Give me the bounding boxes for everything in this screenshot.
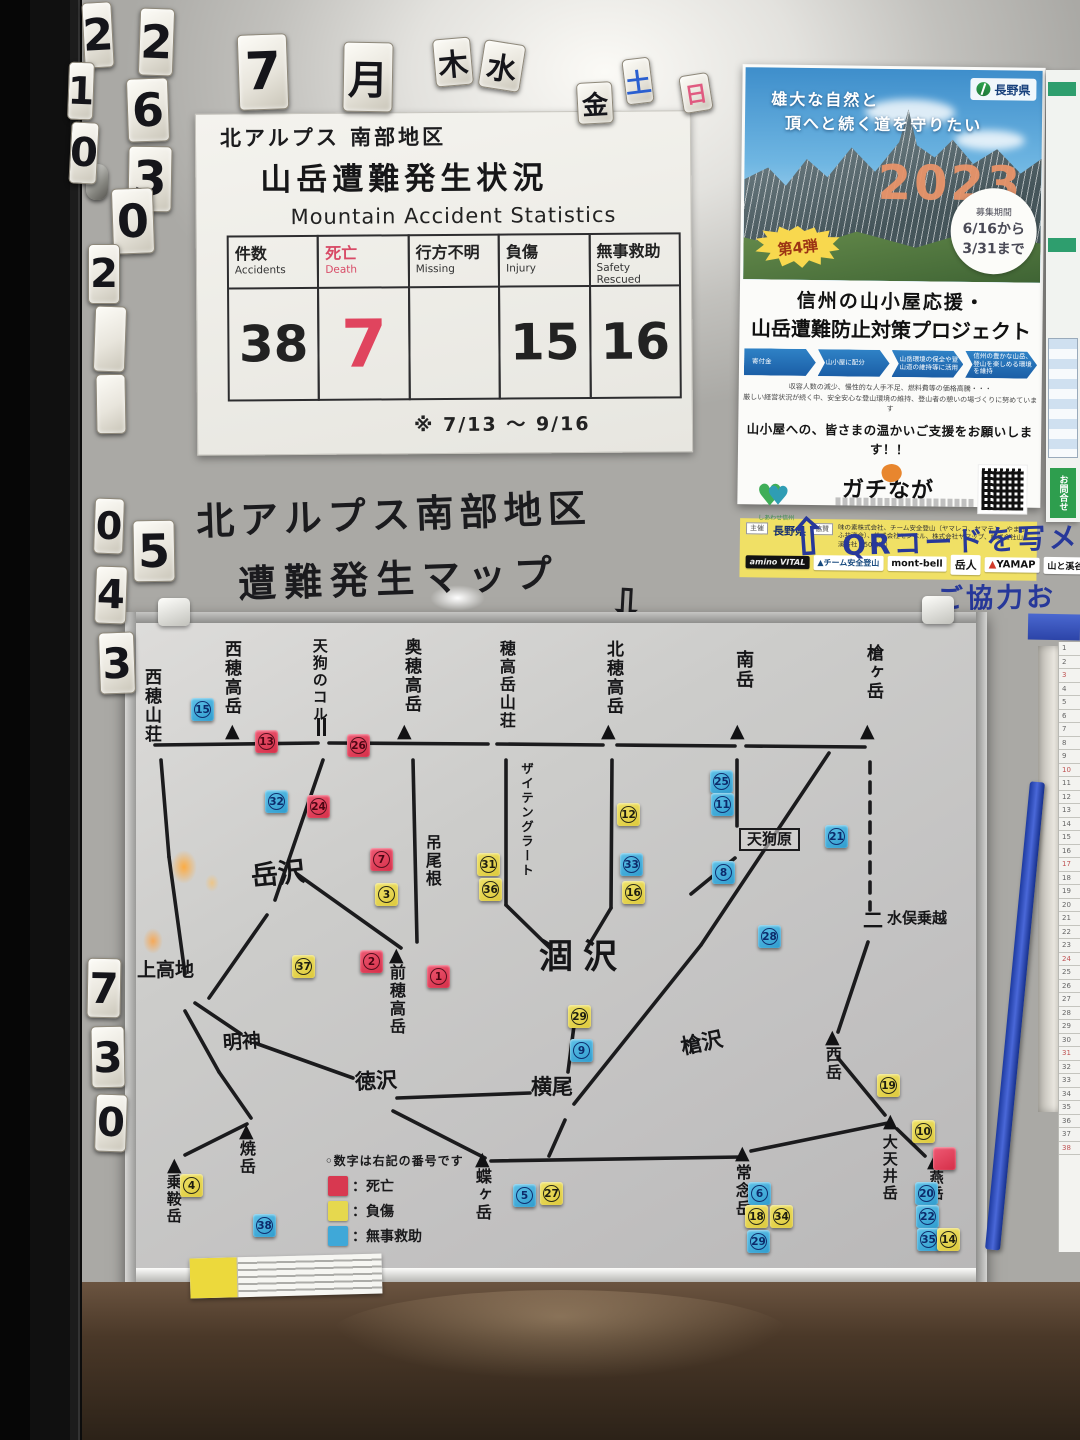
flyer-green-bar (1048, 82, 1076, 96)
map-location: 西穂山荘 (141, 668, 160, 744)
magnet-number: 11 (714, 796, 731, 813)
accident-magnet: 9 (570, 1039, 593, 1062)
calendar-tile: 7 (86, 958, 121, 1019)
accident-magnet: 14 (937, 1228, 960, 1251)
map-location: 穂高岳山荘 (497, 640, 515, 730)
map-title-line2: 遭難発生マップ (237, 542, 561, 608)
peak-triangle-icon: ▲ (883, 1112, 898, 1131)
accident-magnet: 20 (915, 1182, 938, 1205)
magnet-number: 12 (620, 806, 637, 823)
stats-column-header: 無事救助Safety Rescued (590, 234, 679, 287)
poster-title: 信州の山小屋応援・ 山岳遭難防止対策プロジェクト (742, 285, 1040, 345)
legend-label: ：負傷 (352, 1201, 394, 1221)
map-location: 天狗原 (739, 828, 800, 851)
accident-magnet: 1 (427, 965, 450, 988)
calendar-tile: 0 (93, 497, 125, 554)
board-clip (158, 598, 190, 626)
stats-column-accidents: 件数Accidents38 (227, 235, 321, 402)
list-row: 4 (1059, 683, 1080, 697)
accident-magnet: 38 (253, 1214, 276, 1237)
accident-magnet: 4 (180, 1174, 203, 1197)
map-location: 奥穂高岳 (401, 638, 420, 714)
list-row: 11 (1059, 777, 1080, 791)
magnet-number: 4 (183, 1177, 200, 1194)
accident-magnet: 34 (770, 1205, 793, 1228)
legend-color-chip (328, 1201, 348, 1221)
organizer-label: 主催 (746, 522, 768, 534)
gachinaga-logo: ガチなが (842, 471, 934, 504)
poster-brand-row: ♥ ♥ しあわせ信州 ガチなが (754, 463, 1024, 512)
nagano-pref-logo: 長野県 (970, 78, 1036, 101)
peak-triangle-icon: ▲ (167, 1156, 182, 1175)
stats-column-missing: 行方不明Missing (407, 234, 501, 401)
stats-column-header: 負傷Injury (500, 235, 589, 288)
stats-english-title: Mountain Accident Statistics (290, 202, 674, 229)
stats-period-note: ※ 7/13 ～ 9/16 (414, 408, 676, 437)
magnet-number: 21 (828, 828, 845, 845)
stats-column-death: 死亡Death7 (317, 234, 411, 401)
peak-triangle-icon: ▲ (825, 1028, 840, 1047)
list-row: 19 (1059, 885, 1080, 899)
list-row: 6 (1059, 710, 1080, 724)
list-row: 27 (1059, 993, 1080, 1007)
peak-triangle-icon: ▲ (601, 722, 616, 741)
peak-triangle-icon: ▲ (735, 1144, 750, 1163)
map-location: 徳沢 (354, 1069, 397, 1095)
magnet-number: 1 (430, 968, 447, 985)
sponsor-logo-yamap: ▲YAMAP (985, 557, 1040, 573)
magnet-number: 6 (751, 1185, 768, 1202)
poster-step: 山小屋に配分 (818, 349, 890, 377)
peak-triangle-icon: ▲ (475, 1150, 490, 1169)
accident-magnet: 11 (711, 793, 734, 816)
stats-header-jp: 件数 (235, 240, 314, 265)
calendar-tile: 7 (237, 33, 290, 111)
partial-flyer: お問合せ (1046, 70, 1080, 522)
accident-magnet: 36 (479, 878, 502, 901)
numbered-list-sheet: 1234567891011121314151617181920212223242… (1058, 642, 1080, 1252)
up-arrow-icon: ⇧ (784, 507, 832, 570)
poster-tagline: 雄大な自然と 頂へと続く道を守りたい (771, 86, 983, 137)
map-location: ザイテングラート (519, 762, 533, 878)
peak-triangle-icon: ▲ (389, 946, 404, 965)
accident-magnet: 29 (747, 1230, 770, 1253)
poster-step: 寄付金 (744, 348, 816, 376)
accident-magnet: 28 (758, 925, 781, 948)
stats-main-title: 山岳遭難発生状況 (260, 151, 674, 199)
calendar-tile: 1 (67, 62, 95, 121)
magnet-number: 10 (915, 1123, 932, 1140)
peak-triangle-icon: ▲ (225, 722, 240, 741)
map-location: 大天井岳 (881, 1134, 898, 1202)
magnet-number: 22 (919, 1208, 936, 1225)
qr-code (981, 468, 1024, 511)
magnet-number: 8 (715, 864, 732, 881)
list-row: 31 (1059, 1047, 1080, 1061)
magnet-number: 19 (880, 1077, 897, 1094)
magnet-number: 16 (625, 884, 642, 901)
board-clip (922, 596, 954, 624)
magnet-number: 38 (256, 1217, 273, 1234)
legend-row: ：死亡 (328, 1176, 394, 1196)
calendar-tile: 金 (576, 81, 614, 125)
list-row: 25 (1059, 966, 1080, 980)
poster-step-flow: 寄付金山小屋に配分山岳環境の保全や登山道の維持等に活用信州の豊かな山岳、登山を楽… (744, 348, 1037, 379)
calendar-tile: 3 (98, 631, 136, 694)
accident-magnet: 37 (292, 955, 315, 978)
accident-magnet: 27 (540, 1182, 563, 1205)
peak-triangle-icon: ▲ (397, 722, 412, 741)
calendar-tile: 3 (90, 1026, 125, 1089)
map-title-line1: 北アルプス南部地区 (195, 477, 592, 546)
magnet-number: 31 (480, 856, 497, 873)
map-location: 明神 (222, 1031, 261, 1055)
accident-map-board: 西穂山荘西穂高岳▲天狗のコル奥穂高岳▲吊尾根穂高岳山荘ザイテングラート北穂高岳▲… (125, 612, 987, 1292)
accident-magnet: 10 (912, 1120, 935, 1143)
list-row: 7 (1059, 723, 1080, 737)
magnet-number: 37 (295, 958, 312, 975)
heart-icon: ♥ (766, 481, 790, 511)
list-row: 15 (1059, 831, 1080, 845)
magnet-number: 14 (940, 1231, 957, 1248)
magnet-number: 7 (373, 851, 390, 868)
list-row: 23 (1059, 939, 1080, 953)
magnet-number: 3 (378, 886, 395, 903)
stats-column-header: 死亡Death (319, 236, 408, 289)
list-row: 18 (1059, 872, 1080, 886)
stats-header-en: Accidents (235, 264, 313, 277)
legend-label: ：死亡 (352, 1176, 394, 1196)
magnet-number: 28 (761, 928, 778, 945)
map-location: 西岳 (823, 1046, 841, 1082)
map-location: 焼岳 (237, 1140, 255, 1176)
stats-header-en: Safety Rescued (596, 261, 675, 286)
calendar-tile: 日 (678, 72, 714, 114)
calendar-tile: 水 (478, 39, 527, 93)
list-row: 1 (1059, 642, 1080, 656)
display-case-photo: 北アルプス 南部地区 山岳遭難発生状況 Mountain Accident St… (0, 0, 1080, 1440)
magnet-number: 5 (516, 1187, 533, 1204)
list-row: 16 (1059, 845, 1080, 859)
accident-magnet: 22 (916, 1205, 939, 1228)
magnet-number: 13 (258, 733, 275, 750)
legend-heading: ◦数字は右記の番号です (325, 1152, 464, 1169)
flyer-contact-box: お問合せ (1050, 468, 1076, 518)
magnet-number: 24 (310, 798, 327, 815)
accident-magnet: 5 (513, 1184, 536, 1207)
magnet-number: 15 (194, 701, 211, 718)
list-row: 34 (1059, 1088, 1080, 1102)
list-row: 2 (1059, 656, 1080, 670)
magnet-number: 35 (920, 1231, 937, 1248)
map-location: 蝶ヶ岳 (473, 1168, 491, 1222)
accident-magnet: 18 (745, 1205, 768, 1228)
list-row: 24 (1059, 953, 1080, 967)
magnet-number: 9 (573, 1042, 590, 1059)
accident-magnet: 13 (255, 730, 278, 753)
accident-magnet: 12 (617, 803, 640, 826)
calendar-tile: 0 (68, 121, 99, 184)
legend-label: ：無事救助 (352, 1226, 422, 1246)
magnet-number: 27 (543, 1185, 560, 1202)
magnet-number: 32 (268, 793, 285, 810)
list-row: 17 (1059, 858, 1080, 872)
stats-header-jp: 負傷 (506, 238, 585, 263)
magnet-number: 34 (773, 1208, 790, 1225)
map-location: 槍ヶ岳 (863, 644, 882, 701)
flyer-green-bar (1048, 238, 1076, 252)
list-row: 14 (1059, 818, 1080, 832)
peak-triangle-icon: ▲ (239, 1122, 254, 1141)
list-row: 5 (1059, 696, 1080, 710)
stats-board: 北アルプス 南部地区 山岳遭難発生状況 Mountain Accident St… (195, 110, 693, 455)
calendar-tile: 6 (126, 77, 170, 142)
map-location: 北穂高岳 (603, 640, 622, 716)
col-mark-icon (317, 718, 326, 736)
magnet-number: 26 (350, 737, 367, 754)
accident-magnet: 31 (477, 853, 500, 876)
magnet-number: 29 (571, 1008, 588, 1025)
stats-header-jp: 死亡 (325, 239, 404, 264)
list-row: 22 (1059, 926, 1080, 940)
magnet-number: 2 (363, 953, 380, 970)
stats-region-title: 北アルプス 南部地区 (220, 119, 674, 152)
nagano-poster: 雄大な自然と 頂へと続く道を守りたい 長野県 2023 第4弾 募集期間 6/1… (737, 64, 1045, 508)
accident-magnet: 24 (307, 795, 330, 818)
pass-mark-icon: 二 (863, 904, 883, 933)
magnet-number (936, 1150, 953, 1167)
qr-note-line1: QRコードを写メ (841, 516, 1080, 564)
calendar-tile: 月 (342, 42, 393, 113)
stats-header-en: Injury (506, 262, 584, 275)
map-location: 横尾 (531, 1076, 573, 1100)
shelf-light (330, 1290, 790, 1380)
peak-triangle-icon: ▲ (860, 722, 875, 741)
frame-sticker (190, 1253, 383, 1298)
list-row: 36 (1059, 1115, 1080, 1129)
poster-step: 山岳環境の保全や登山道の維持等に活用 (891, 350, 963, 378)
legend-row: ：無事救助 (328, 1226, 422, 1246)
map-location: 涸沢 (539, 938, 627, 976)
map-location: 天狗のコル (311, 638, 328, 723)
calendar-tile: 4 (94, 565, 128, 624)
poster-body-text: 収容人数の減少、慢性的な人手不足、燃料費等の価格高騰・・・ 厳しい経営状況が続く… (741, 381, 1038, 416)
accident-magnet: 25 (710, 770, 733, 793)
stats-column-injury: 負傷Injury15 (498, 233, 592, 400)
stats-value: 7 (319, 288, 408, 399)
list-row: 29 (1059, 1020, 1080, 1034)
map-location: 前穂高岳 (387, 964, 405, 1036)
map-location: 岳沢 (250, 857, 307, 893)
list-row: 28 (1059, 1007, 1080, 1021)
map-location: 吊尾根 (423, 834, 441, 888)
magnet-number: 18 (748, 1208, 765, 1225)
poster-photo: 雄大な自然と 頂へと続く道を守りたい 長野県 2023 第4弾 募集期間 6/1… (743, 67, 1043, 283)
stats-value: 16 (591, 286, 680, 397)
accident-magnet: 7 (370, 848, 393, 871)
accident-magnet: 26 (347, 734, 370, 757)
magnet-number: 29 (750, 1233, 767, 1250)
calendar-tile: 木 (432, 36, 474, 87)
stats-column-safety-rescued: 無事救助Safety Rescued16 (588, 232, 682, 399)
magnet-number: 36 (482, 881, 499, 898)
stats-value: 15 (500, 287, 589, 398)
map-location: 上高地 (137, 960, 194, 981)
list-row: 37 (1059, 1128, 1080, 1142)
calendar-tile: 2 (138, 7, 175, 76)
nagano-logo-icon (976, 82, 990, 96)
list-row: 30 (1059, 1034, 1080, 1048)
stats-header-en: Death (325, 263, 403, 276)
calendar-tile: 0 (94, 1093, 128, 1152)
calendar-tile: 2 (81, 1, 114, 68)
list-row: 13 (1059, 804, 1080, 818)
accident-magnet: 29 (568, 1005, 591, 1028)
stats-value: 38 (229, 289, 318, 400)
accident-magnet: 19 (877, 1074, 900, 1097)
stats-column-header: 件数Accidents (229, 237, 318, 290)
stats-column-header: 行方不明Missing (409, 236, 498, 289)
list-row: 12 (1059, 791, 1080, 805)
accident-magnet: 6 (748, 1182, 771, 1205)
legend-row: ：負傷 (328, 1201, 394, 1221)
list-row: 38 (1059, 1142, 1080, 1156)
flyer-mini-table (1048, 338, 1078, 458)
list-row: 33 (1059, 1074, 1080, 1088)
peak-triangle-icon: ▲ (730, 722, 745, 741)
list-row: 32 (1059, 1061, 1080, 1075)
magnet-number: 33 (623, 856, 640, 873)
list-row: 3 (1059, 669, 1080, 683)
list-row: 20 (1059, 899, 1080, 913)
legend-color-chip (328, 1176, 348, 1196)
list-row: 26 (1059, 980, 1080, 994)
calendar-tile: 5 (132, 520, 175, 583)
map-location: 南岳 (733, 650, 753, 690)
blue-rail (1028, 614, 1080, 641)
accident-magnet: 16 (622, 881, 645, 904)
map-location: 水俣乗越 (887, 910, 947, 927)
stats-table: 件数Accidents38死亡Death7行方不明Missing負傷Injury… (229, 232, 682, 401)
map-location: 西穂高岳 (221, 640, 240, 716)
calendar-tile (93, 305, 127, 372)
sponsor-logo-yamakei: 山と溪谷社 (1043, 557, 1080, 575)
calendar-tile (95, 374, 126, 435)
poster-step: 信州の豊かな山岳、登山を楽しめる環境を維持 (965, 351, 1037, 379)
accident-magnet: 21 (825, 825, 848, 848)
magnet-number: 25 (713, 773, 730, 790)
logo-caption-lines (836, 497, 976, 507)
window-frame (0, 0, 82, 1440)
stats-header-jp: 行方不明 (416, 239, 495, 264)
list-row: 8 (1059, 737, 1080, 751)
stats-header-jp: 無事救助 (596, 237, 675, 262)
accident-magnet: 2 (360, 950, 383, 973)
accident-magnet: 33 (620, 853, 643, 876)
accident-magnet: 3 (375, 883, 398, 906)
calendar-tile: 2 (88, 244, 120, 304)
poster-appeal: 山小屋への、皆さまの温かいご支援をお願いします！！ (741, 418, 1038, 460)
stats-value (410, 288, 499, 399)
list-row: 21 (1059, 912, 1080, 926)
accident-magnet: 15 (191, 698, 214, 721)
accident-magnet: 8 (712, 861, 735, 884)
accident-magnet: 32 (265, 790, 288, 813)
list-row: 35 (1059, 1101, 1080, 1115)
magnet-number: 20 (918, 1185, 935, 1202)
accident-magnet (933, 1147, 956, 1170)
list-row: 9 (1059, 750, 1080, 764)
legend-color-chip (328, 1226, 348, 1246)
calendar-tile: 土 (621, 56, 654, 105)
stats-header-en: Missing (416, 263, 494, 276)
blue-stick (985, 781, 1045, 1250)
list-row: 10 (1059, 764, 1080, 778)
